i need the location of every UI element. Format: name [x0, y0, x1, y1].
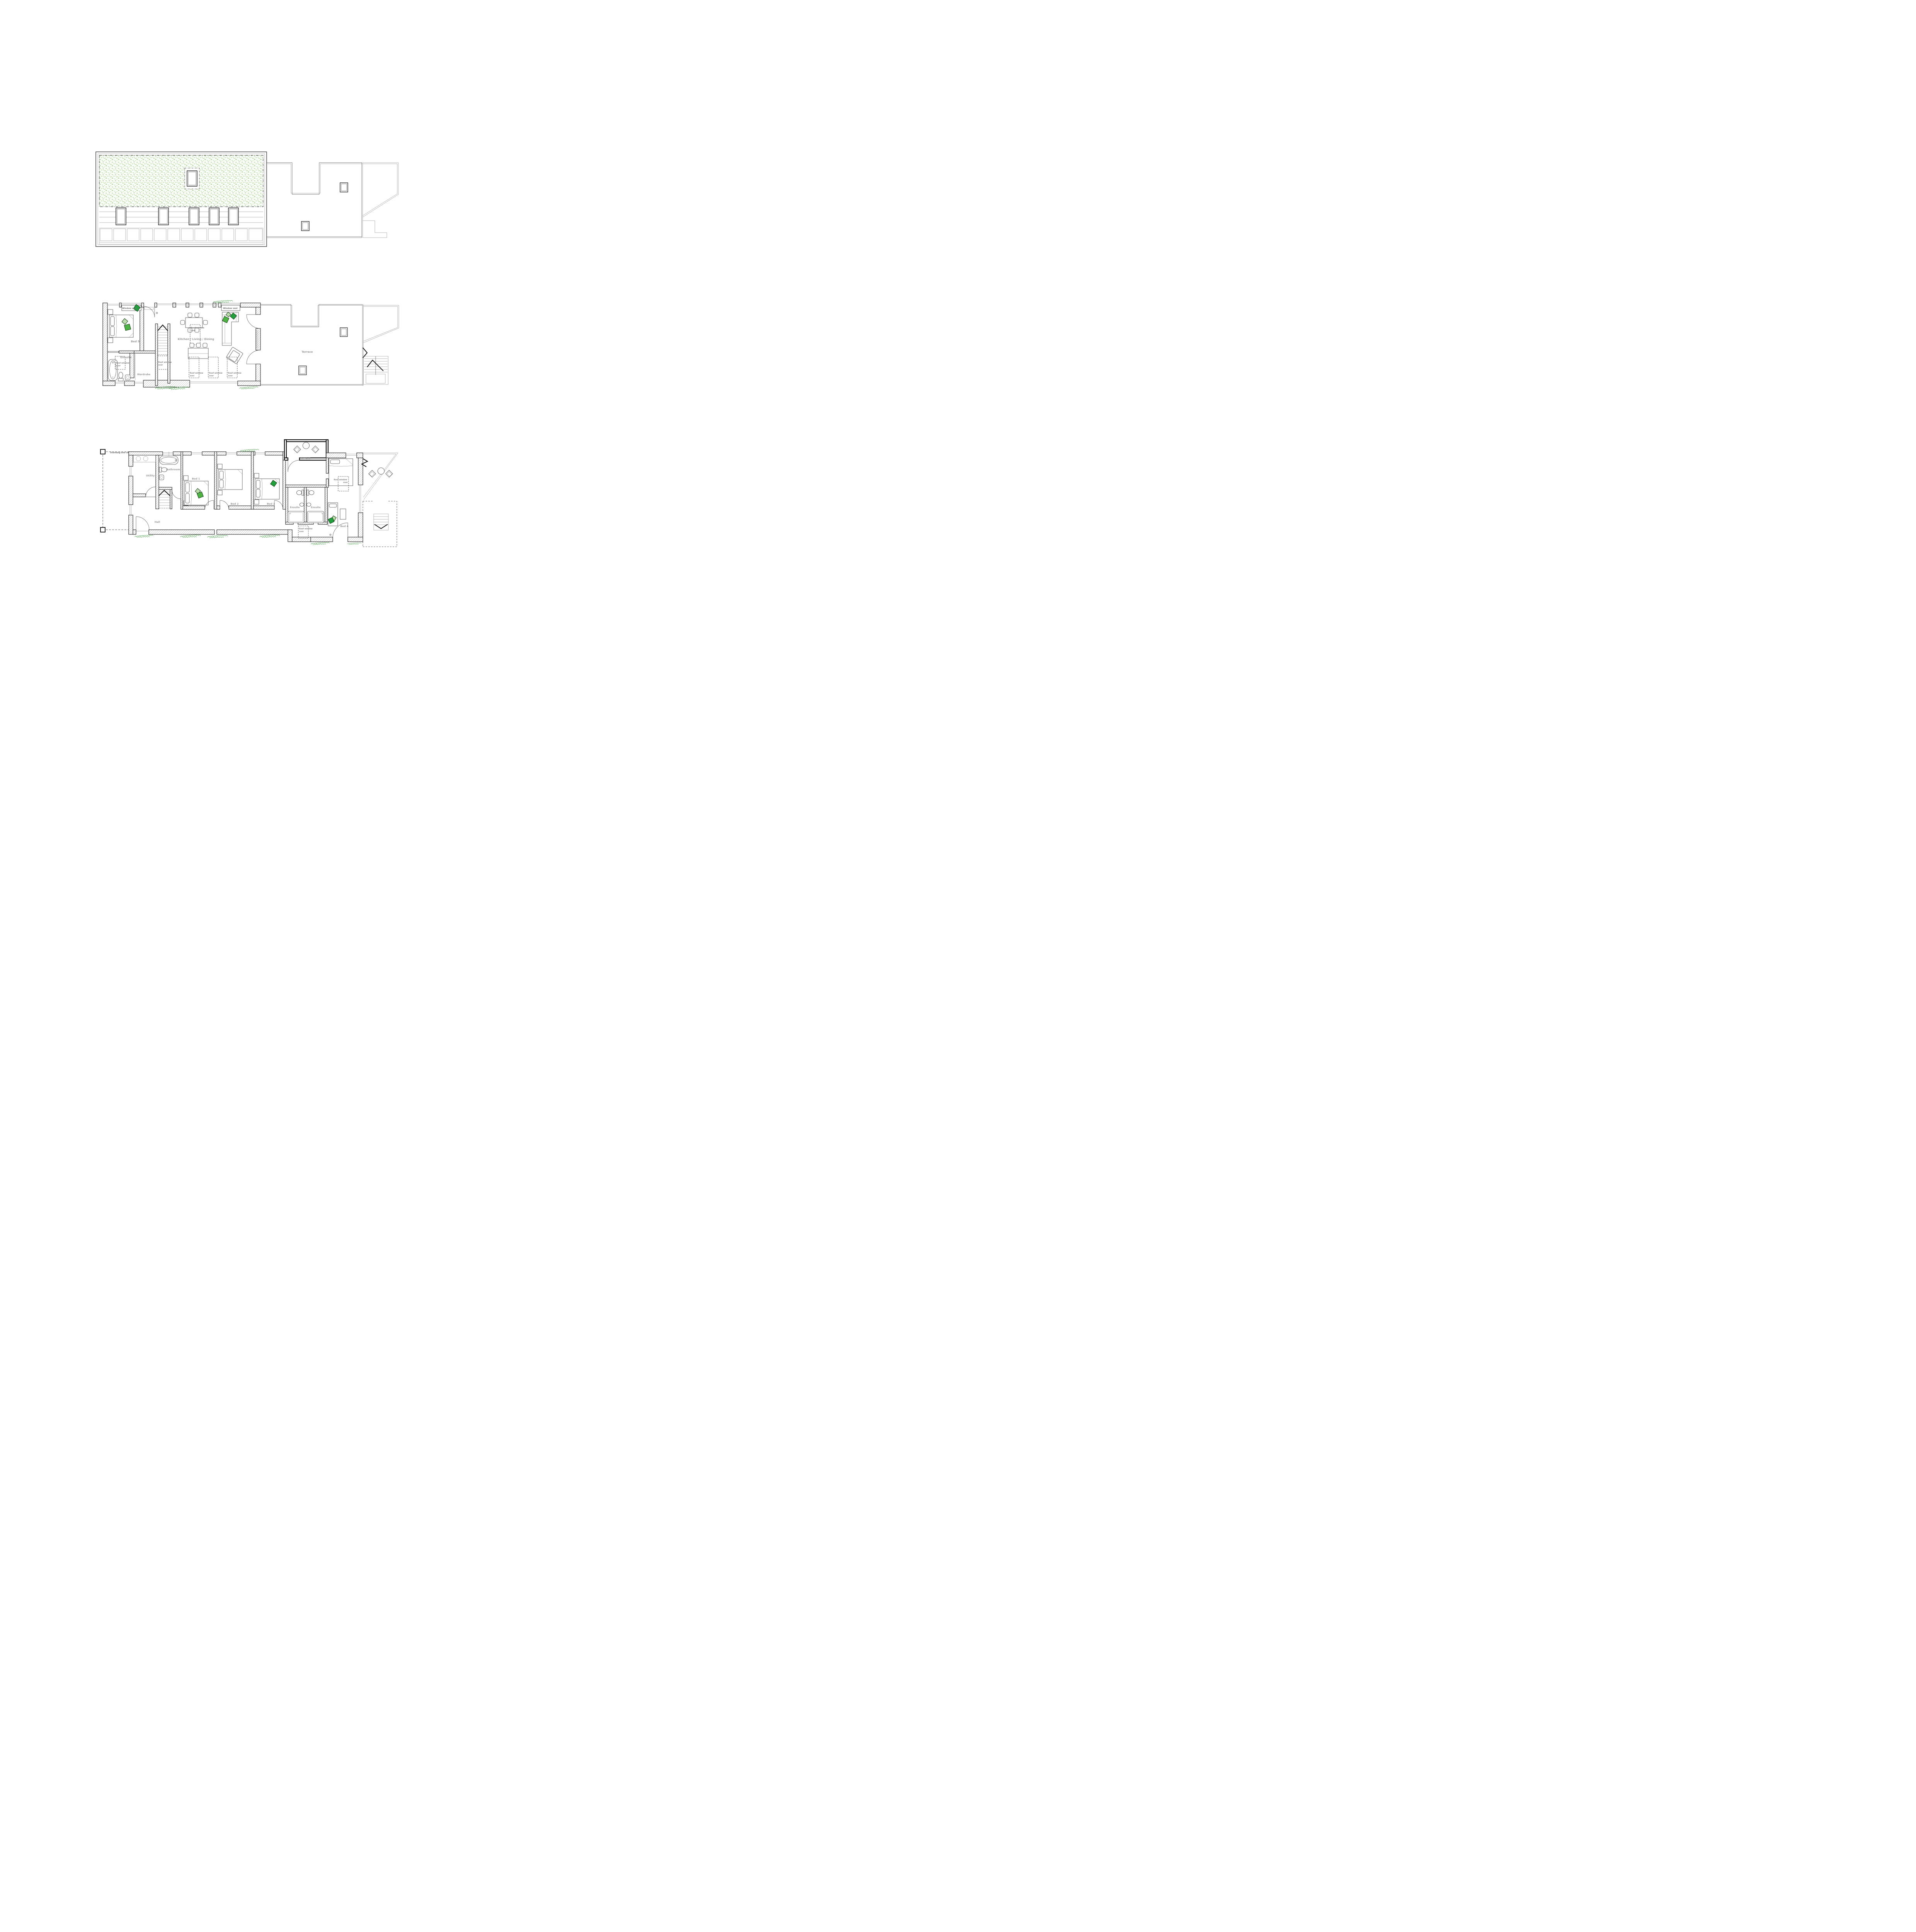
- terrace: Terrace: [288, 442, 319, 472]
- shrub: [208, 535, 228, 538]
- bedside-table: [184, 476, 188, 480]
- skylight-opening: [299, 366, 306, 375]
- room-label: Utility: [146, 474, 155, 477]
- room-label: Bathroom: [166, 468, 180, 471]
- armchair: [226, 347, 243, 364]
- toilet: [297, 490, 304, 495]
- rooflight: [340, 183, 348, 192]
- rooflight: [116, 208, 126, 225]
- washbasin: [300, 503, 305, 507]
- double-bed: [184, 481, 208, 505]
- terrace-door: [247, 315, 260, 328]
- bed4-room: Roof window over Bed 4: [328, 459, 353, 537]
- toilet: [307, 490, 314, 495]
- bedside-table: [254, 473, 259, 478]
- shrub: [180, 535, 201, 538]
- shrub: [311, 542, 330, 545]
- shrub: [135, 535, 153, 537]
- south-wall-slab: [143, 380, 190, 387]
- external-stair: [374, 514, 388, 530]
- double-bed: [255, 479, 279, 499]
- washbasin: [125, 375, 130, 380]
- ensuite-left: Ensuite: [288, 490, 305, 523]
- chair: [386, 470, 393, 477]
- bed3-room: Bed 3: [254, 473, 283, 509]
- door-swing: [220, 500, 229, 509]
- stool: [203, 343, 207, 347]
- rooflight: [158, 208, 168, 225]
- deck-outline: [363, 453, 398, 500]
- corner-sofa: [222, 312, 238, 345]
- rooflight: [301, 221, 309, 231]
- wardrobe-room: Wardrobe: [135, 354, 150, 380]
- rooflight: [209, 208, 219, 225]
- door-swing: [274, 500, 283, 509]
- overhang-outline: Overhang over shown dashed: [100, 449, 141, 532]
- bed5-room: Bed 5: [108, 310, 140, 343]
- svg-text:Roof window over: Roof window over: [299, 528, 313, 533]
- counter: [133, 455, 156, 462]
- washbasin: [306, 503, 311, 507]
- shrub: [347, 543, 361, 545]
- roof-window-outline: [208, 357, 218, 378]
- roof-window-outline: [189, 357, 199, 378]
- svg-text:Roof windowover: Roof windowover: [228, 372, 242, 377]
- door-swing: [146, 487, 156, 497]
- rooflight: [189, 208, 199, 225]
- stair-arrow: [374, 524, 388, 529]
- ground-floor-plan: Overhang over shown dashed: [99, 435, 408, 551]
- stair-arrow: [159, 490, 170, 496]
- roof-window-hall: Roof window over: [298, 526, 313, 538]
- terrace-door: [247, 350, 260, 364]
- room-label: Bed 3: [267, 502, 275, 505]
- first-floor-plan: Window seat Window seat Bed 5: [97, 298, 406, 394]
- double-bed: [329, 459, 353, 486]
- door-swing: [172, 490, 181, 499]
- round-table: [303, 442, 310, 449]
- green-cushion: [124, 324, 131, 330]
- column: [100, 527, 105, 532]
- shrub: [260, 535, 280, 538]
- shower: [307, 511, 324, 523]
- bedside-table: [108, 310, 113, 315]
- stair-roof-outline: [363, 221, 387, 238]
- shrub: [240, 386, 258, 389]
- round-table: [378, 468, 385, 474]
- sliding-door: [108, 351, 119, 352]
- chair: [369, 470, 376, 477]
- double-bed: [218, 469, 242, 490]
- bedside-table: [254, 500, 259, 504]
- window-seat-1: Window seat: [122, 304, 141, 311]
- sedum-roof-area: [99, 155, 263, 207]
- room-label: Bed 2: [231, 502, 239, 505]
- stool: [190, 343, 194, 347]
- room-label: Bed 4: [340, 525, 349, 528]
- room-label: Ensuite: [290, 506, 299, 509]
- rooflight: [228, 208, 238, 225]
- main-roof: [96, 152, 267, 247]
- chair: [312, 446, 319, 453]
- stool: [196, 343, 201, 347]
- bed2-room: Bed 2: [218, 464, 242, 509]
- terrace: Terrace: [260, 304, 399, 386]
- room-label: Kitchen / Living / Dining: [178, 338, 214, 341]
- deck: [362, 453, 398, 547]
- utility-room: Utility: [133, 455, 156, 497]
- washing-machine: [143, 456, 148, 461]
- bedside-table: [218, 490, 222, 495]
- kitchen-island: [188, 343, 208, 359]
- stair-arrow: [158, 325, 168, 331]
- stairs: [159, 490, 170, 508]
- deck-outline: [364, 305, 399, 343]
- room-label: Bed 5: [131, 340, 140, 343]
- desk: [340, 509, 346, 519]
- room-label: Terrace: [300, 457, 311, 460]
- toilet: [118, 372, 123, 381]
- svg-text:Roof windowover: Roof windowover: [190, 372, 203, 377]
- room-label: Wardrobe: [137, 373, 150, 376]
- terrace-roof: [267, 163, 398, 238]
- window-seat-2: Window seat: [221, 305, 240, 311]
- shower: [288, 511, 304, 523]
- front-door-swing: [136, 517, 149, 530]
- architectural-drawing-sheet: Window seat Window seat Bed 5: [0, 0, 479, 678]
- dining-table: [180, 313, 208, 332]
- washbasin: [159, 475, 164, 480]
- skylight-opening: [340, 328, 347, 337]
- room-label: Ensuite: [120, 356, 132, 359]
- bed1-room: Bed 1: [184, 476, 214, 509]
- roof-window-note: Roof window over: [116, 362, 130, 367]
- window-seat-label: Window seat: [122, 308, 137, 310]
- room-label: Terrace: [301, 350, 313, 354]
- ensuite-room: Roof window over Ensuite: [108, 356, 132, 381]
- door-swing: [288, 460, 299, 472]
- svg-text:Roof windowover: Roof windowover: [209, 372, 223, 377]
- deck-outline: [363, 163, 399, 217]
- entry-door: [144, 306, 158, 317]
- room-label: Ensuite: [311, 506, 320, 509]
- bedside-table: [218, 464, 222, 469]
- deck-overhang-dashed: [363, 501, 397, 547]
- column: [100, 449, 105, 454]
- bedside-table: [108, 338, 113, 343]
- washing-machine: [136, 456, 141, 461]
- chair: [294, 446, 301, 453]
- room-label: Bed 1: [192, 477, 200, 480]
- rooflight: [185, 168, 199, 189]
- window-seat-label: Window seat: [223, 308, 238, 310]
- hall: Hall: [136, 517, 160, 530]
- ensuite-right: Ensuite: [306, 490, 324, 523]
- room-label: Hall: [155, 520, 160, 524]
- kitchen-living-dining: Roof window over Kitchen / Living / Dini…: [178, 312, 260, 378]
- roof-plan: [93, 149, 406, 253]
- external-stair: [364, 356, 388, 384]
